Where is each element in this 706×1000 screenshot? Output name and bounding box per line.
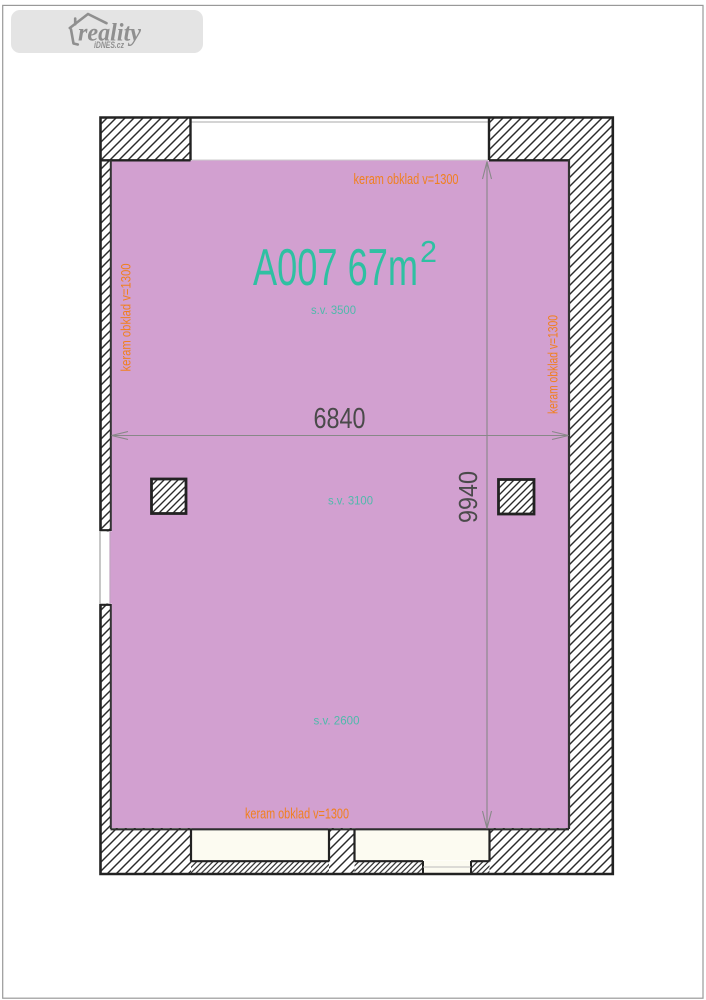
svg-text:2: 2 — [420, 234, 437, 269]
svg-text:s.v. 3500: s.v. 3500 — [311, 303, 356, 317]
svg-text:keram obklad v=1300: keram obklad v=1300 — [245, 807, 349, 823]
svg-text:iDNES.cz: iDNES.cz — [94, 40, 124, 51]
svg-text:keram obklad v=1300: keram obklad v=1300 — [119, 264, 134, 372]
svg-text:s.v. 3100: s.v. 3100 — [328, 494, 373, 508]
svg-text:6840: 6840 — [314, 403, 366, 435]
svg-text:keram obklad v=1300: keram obklad v=1300 — [354, 172, 459, 188]
svg-text:keram obklad v=1300: keram obklad v=1300 — [546, 315, 561, 414]
svg-text:s.v. 2600: s.v. 2600 — [314, 714, 360, 728]
svg-text:9940: 9940 — [453, 471, 483, 523]
svg-text:A007 67m: A007 67m — [253, 239, 418, 297]
